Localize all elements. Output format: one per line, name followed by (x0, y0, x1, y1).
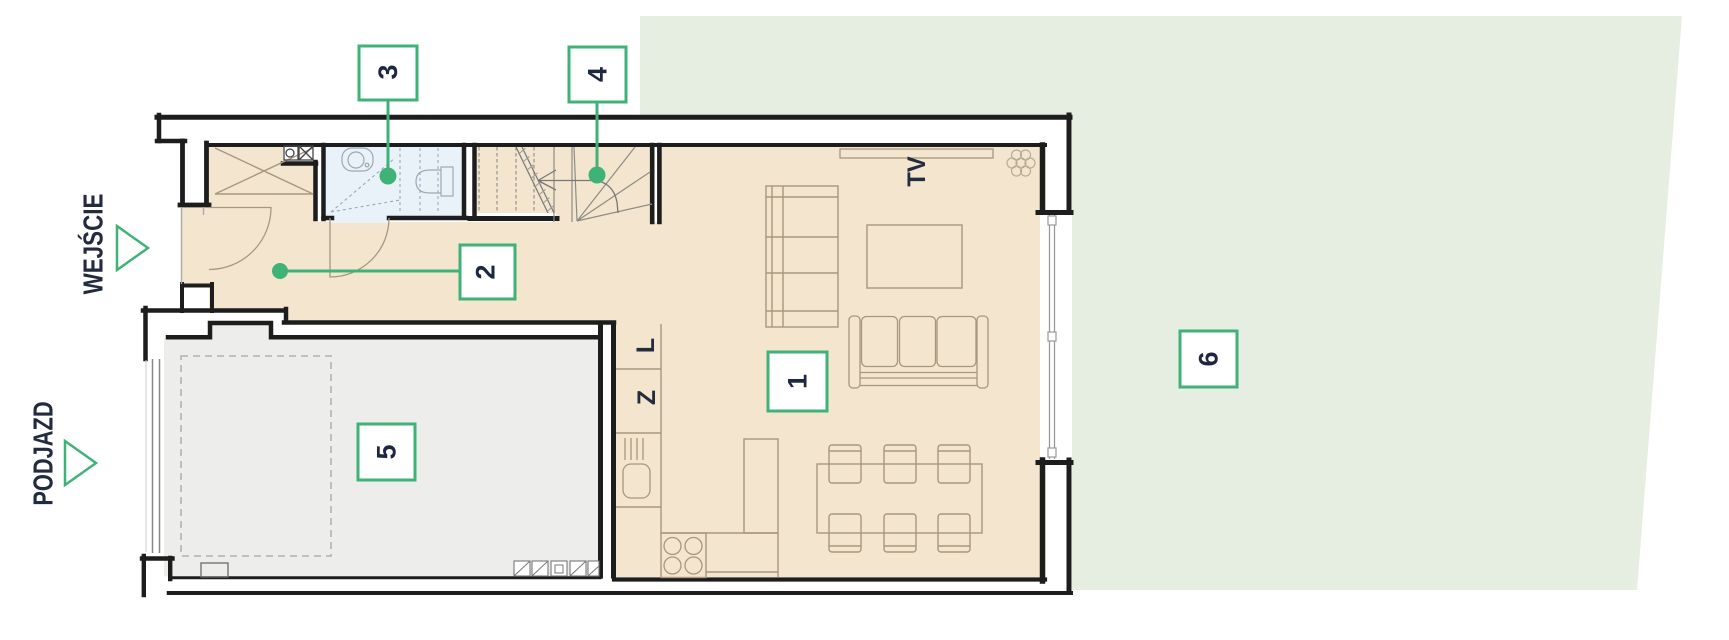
svg-text:TV: TV (904, 156, 932, 187)
svg-text:6: 6 (1194, 351, 1224, 366)
svg-text:L: L (632, 338, 660, 353)
svg-text:4: 4 (583, 67, 613, 82)
svg-text:WEJŚCIE: WEJŚCIE (76, 194, 109, 295)
svg-text:Z: Z (633, 390, 661, 405)
svg-text:1: 1 (783, 374, 813, 389)
svg-text:5: 5 (372, 444, 402, 459)
svg-text:2: 2 (471, 264, 501, 279)
svg-text:3: 3 (373, 64, 403, 79)
svg-text:PODJAZD: PODJAZD (28, 401, 59, 505)
